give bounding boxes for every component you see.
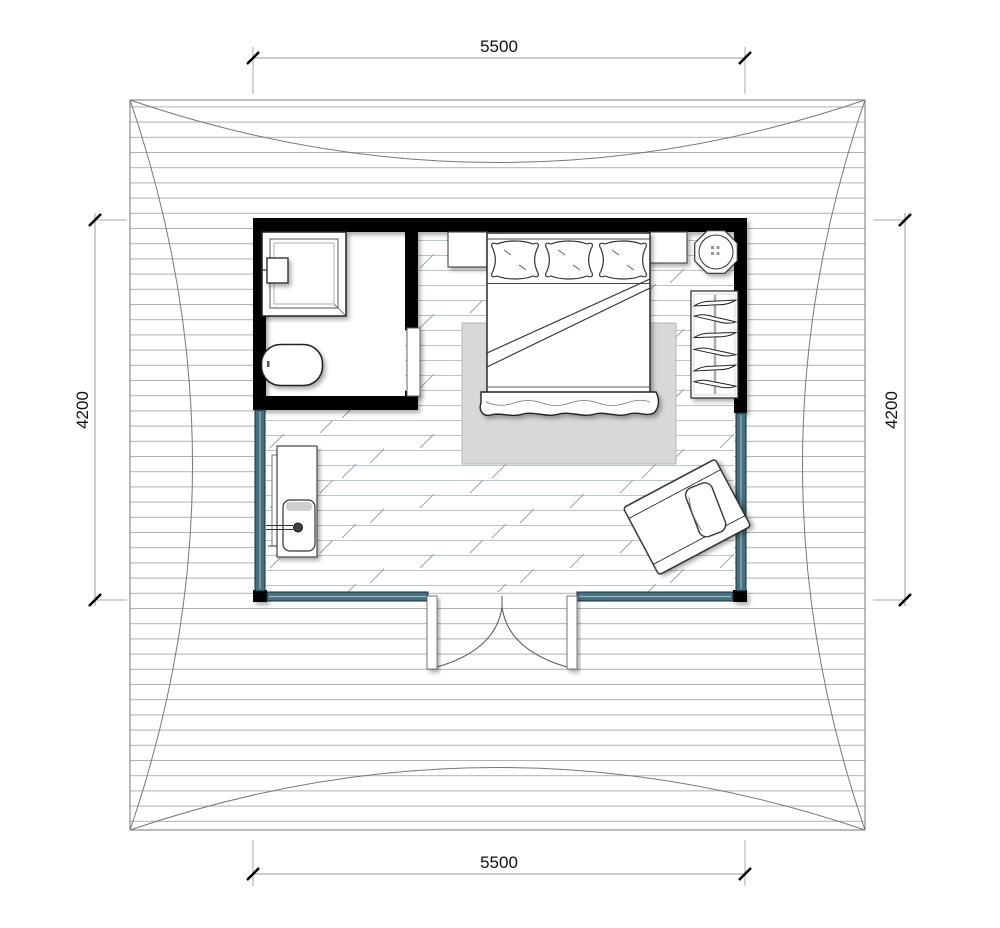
round-side-table [695,231,738,274]
dimension-right: 4200 [873,213,911,606]
door-leaf-right [567,596,577,669]
wall-top [253,218,747,232]
sink-shading [286,502,312,511]
floor-plan-drawing: 5500 5500 4200 4200 [0,0,1000,928]
faucet [294,523,303,532]
dimension-left-label: 4200 [73,391,92,429]
bathroom-partition-upper [405,232,418,330]
nightstand-right [648,232,687,263]
dimension-left: 4200 [73,213,127,606]
sink-counter [266,446,317,557]
dimension-right-label: 4200 [882,391,901,429]
building [253,218,751,669]
toilet [262,345,323,386]
blanket-foot [480,392,658,415]
pillow-1 [492,241,539,279]
corner-post-bottom-left [253,590,267,602]
door-leaf-left [427,596,437,669]
dimension-top: 5500 [247,37,751,94]
nightstand-left [448,232,487,267]
corner-post-bottom-right [733,590,747,602]
bathroom-sliding-door [407,328,420,396]
double-bed [480,233,658,415]
bathroom-wall-bottom [253,396,418,410]
dimension-bottom-label: 5500 [480,853,518,872]
toilet-flush [267,361,270,367]
dimension-top-label: 5500 [480,37,518,56]
wardrobe [691,291,738,398]
pillow-2 [546,241,593,279]
floor-plan: 5500 5500 4200 4200 [0,0,1000,928]
dimension-bottom: 5500 [247,840,751,886]
pillow-3 [600,241,647,279]
